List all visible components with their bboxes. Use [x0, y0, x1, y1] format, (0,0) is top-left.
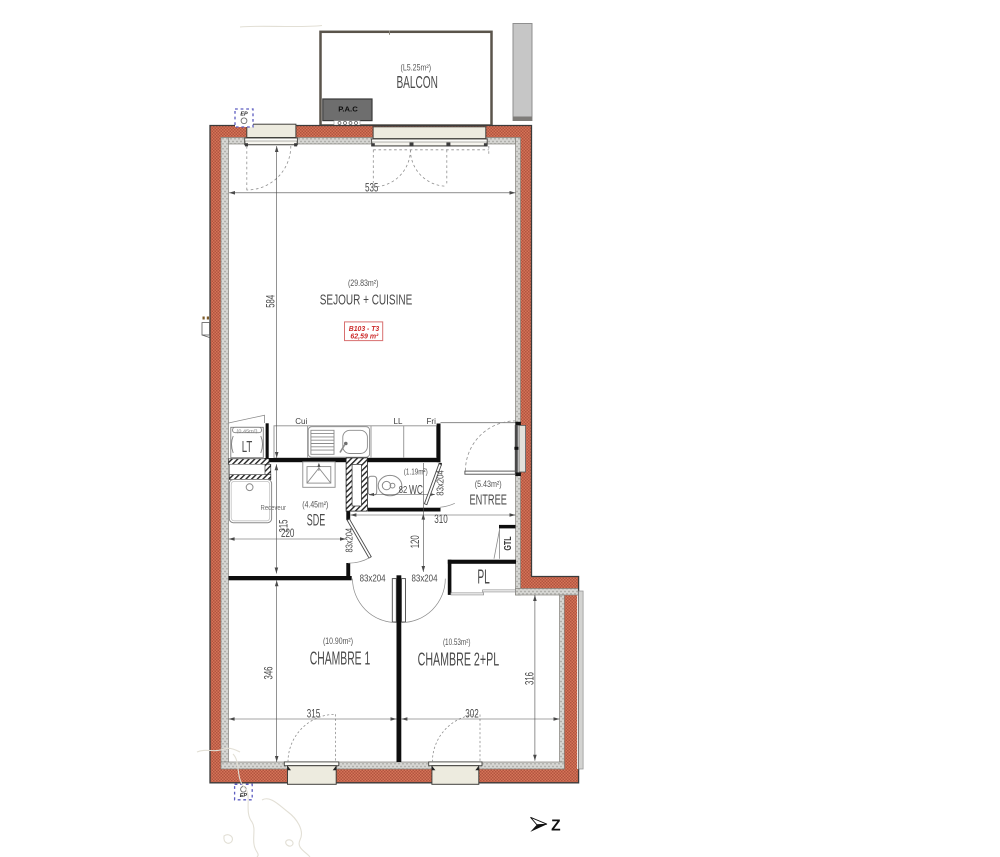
- svg-text:(1.19m²): (1.19m²): [404, 466, 428, 476]
- svg-text:LT: LT: [242, 439, 253, 456]
- svg-text:83x204: 83x204: [360, 574, 386, 585]
- svg-text:Z: Z: [551, 817, 561, 834]
- svg-text:302: 302: [465, 706, 479, 720]
- svg-text:584: 584: [264, 295, 278, 308]
- svg-text:83x204: 83x204: [436, 470, 447, 496]
- svg-text:(5.43m²): (5.43m²): [475, 479, 502, 489]
- svg-text:(10.53m²): (10.53m²): [443, 637, 471, 647]
- svg-text:346: 346: [262, 666, 276, 679]
- svg-text:Cui: Cui: [295, 417, 307, 426]
- svg-text:ENTREE: ENTREE: [469, 492, 507, 508]
- svg-text:83x204: 83x204: [345, 528, 356, 553]
- svg-text:82: 82: [399, 484, 408, 496]
- svg-text:Receveur: Receveur: [261, 503, 287, 512]
- svg-text:CHAMBRE 2+PL: CHAMBRE 2+PL: [418, 650, 500, 670]
- svg-text:P.A.C: P.A.C: [338, 105, 358, 114]
- svg-text:EP: EP: [240, 112, 248, 118]
- svg-text:120: 120: [408, 535, 422, 548]
- svg-text:(4.45m²): (4.45m²): [302, 500, 328, 510]
- svg-text:SEJOUR + CUISINE: SEJOUR + CUISINE: [320, 293, 413, 309]
- svg-text:EP: EP: [240, 793, 248, 799]
- svg-text:BALCON: BALCON: [396, 72, 438, 92]
- svg-text:83x204: 83x204: [412, 574, 438, 585]
- svg-text:315: 315: [307, 706, 321, 720]
- svg-text:CHAMBRE 1: CHAMBRE 1: [310, 649, 371, 669]
- svg-text:PL: PL: [477, 567, 490, 589]
- svg-text:310: 310: [434, 512, 448, 526]
- svg-text:220: 220: [281, 526, 295, 540]
- svg-text:GTL: GTL: [503, 536, 514, 550]
- svg-text:(L5.25m²): (L5.25m²): [401, 63, 432, 73]
- svg-text:535: 535: [365, 180, 379, 194]
- svg-text:(29.83m²): (29.83m²): [348, 278, 379, 288]
- svg-text:62,59 m²: 62,59 m²: [350, 332, 378, 341]
- svg-text:(10.90m²): (10.90m²): [323, 636, 353, 646]
- svg-text:LL: LL: [394, 417, 403, 426]
- svg-text:(0.45m²): (0.45m²): [237, 429, 258, 435]
- svg-text:316: 316: [522, 672, 536, 685]
- svg-text:Fri: Fri: [427, 417, 437, 426]
- svg-text:SDE: SDE: [307, 512, 326, 530]
